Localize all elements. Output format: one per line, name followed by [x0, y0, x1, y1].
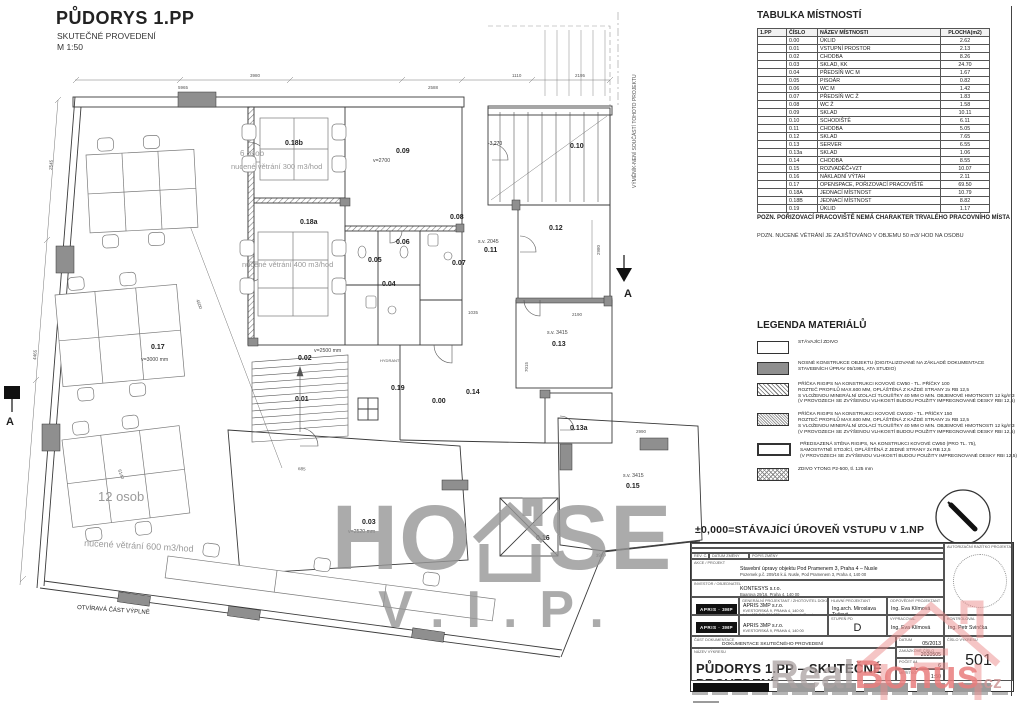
table-cell: [758, 133, 787, 141]
room-label: 0.13: [552, 341, 566, 348]
room-label: 0.08: [450, 214, 464, 221]
project-label: AKCE / PROJEKT: [694, 561, 725, 565]
table-cell: 1.17: [941, 205, 990, 213]
table-cell: 0.04: [787, 69, 818, 77]
table-cell: 1.67: [941, 69, 990, 77]
table-cell: [758, 101, 787, 109]
legend-text: STÁVAJÍCÍ ZDIVO: [798, 340, 838, 346]
table-row: 0.13aSKLAD1.06: [758, 149, 990, 157]
table-cell: CHODBA: [818, 157, 941, 165]
date-cell: DATUM 05/2013: [896, 636, 944, 647]
drawing-title-cell: NÁZEV VÝKRESU PŮDORYS 1.PP – SKUTEČNÉ PR…: [691, 648, 896, 681]
apris-logo: APRIS · 3MP: [696, 604, 737, 615]
legend-item: STÁVAJÍCÍ ZDIVO: [757, 340, 1019, 354]
note-ventilation: POZN. NUCENÉ VĚTRÁNÍ JE ZAJIŠŤOVÁNO V OB…: [757, 233, 1017, 239]
table-cell: VSTUPNÍ PROSTOR: [818, 45, 941, 53]
order-cell: ZAKÁZKOVÉ ČÍSLO 2020505: [896, 647, 944, 658]
table-row: 0.13SERVER6.55: [758, 141, 990, 149]
table-cell: PŘEDSÍŇ WC M: [818, 69, 941, 77]
legend-swatch-cross-icon: [757, 468, 789, 481]
designer-address: KVESTORSKÁ 9, PRAHA 4, 140 00: [743, 629, 827, 633]
legend-text: NOSNÉ KONSTRUKCE OBJEKTU (DIGITALIZOVANÉ…: [798, 361, 984, 373]
floor-plan: 0.17v=3000 mm0.18b0.18a0.09v=27000.100.1…: [0, 0, 750, 703]
table-cell: 0.14: [787, 157, 818, 165]
checked-label: KONTROLOVAL: [947, 617, 975, 621]
drawing-sheet: 0.17v=3000 mm0.18b0.18a0.09v=27000.100.1…: [0, 0, 1024, 703]
table-cell: [758, 45, 787, 53]
room-label: 0.16: [536, 535, 550, 542]
rev-col-label: POPIS ZMĚNY: [752, 554, 778, 558]
dim-label: 2588: [428, 85, 439, 90]
table-cell: SERVER: [818, 141, 941, 149]
table-row: 0.11CHODBA5.05: [758, 125, 990, 133]
legend-title: LEGENDA MATERIÁLŮ: [757, 320, 866, 331]
table-row: 0.08WC Ž1.58: [758, 101, 990, 109]
room-label: 0.01: [295, 396, 309, 403]
table-cell: 0.10: [787, 117, 818, 125]
room-sublabel: v=2700: [373, 158, 390, 164]
table-cell: [758, 85, 787, 93]
room-sublabel: v=2500 mm: [314, 348, 341, 354]
table-cell: 0.09: [787, 109, 818, 117]
scale-cell: MĚŘÍTKO 1:50: [896, 669, 944, 681]
plan-annotation: 6 osob: [240, 149, 265, 158]
dim-label: 1035: [468, 310, 479, 315]
room-label: 0.18a: [300, 219, 318, 226]
title-block: REV. Č. DATUM ZMĚNY POPIS ZMĚNY AUTORIZA…: [690, 542, 1014, 692]
table-cell: PŘEDSÍŇ WC Ž: [818, 93, 941, 101]
legend-item: NOSNÉ KONSTRUKCE OBJEKTU (DIGITALIZOVANÉ…: [757, 361, 1019, 375]
table-row: 0.12SKLAD7.65: [758, 133, 990, 141]
table-row: 0.01VSTUPNÍ PROSTOR2.13: [758, 45, 990, 53]
table-cell: [758, 53, 787, 61]
table-cell: 0.82: [941, 77, 990, 85]
table-cell: PISOÁR: [818, 77, 941, 85]
dim-label: 2190: [572, 312, 583, 317]
table-cell: 10.79: [941, 189, 990, 197]
drafted-name: Ing. Eva Klímová: [891, 625, 943, 631]
table-cell: SKLAD: [818, 109, 941, 117]
table-row: 0.15ROZVADĚČ+VZT10.07: [758, 165, 990, 173]
room-label: 0.03: [362, 519, 376, 526]
col-name: NÁZEV MÍSTNOSTI: [818, 29, 941, 37]
table-row: 0.10SCHODIŠTĚ6.11: [758, 117, 990, 125]
room-sublabel: s.v. 3415: [547, 330, 568, 336]
apris-logo: APRIS · 3MP: [696, 622, 737, 633]
stamp-label: AUTORIZAČNÍ RAZÍTKO PROJEKTANTA: [947, 545, 1013, 549]
plan-annotation: nucené větrání 300 m3/hod: [231, 162, 322, 171]
table-cell: 0.01: [787, 45, 818, 53]
table-row: 0.14CHODBA8.55: [758, 157, 990, 165]
table-row: 0.07PŘEDSÍŇ WC Ž1.83: [758, 93, 990, 101]
responsible-label: ODPOVĚDNÝ PROJEKTANT: [890, 599, 940, 603]
page-title: PŮDORYS 1.PP: [56, 8, 194, 29]
dim-label: 7015: [524, 361, 529, 372]
dim-label: 1110: [512, 73, 522, 78]
table-row: 0.00ÚKLID2.62: [758, 37, 990, 45]
wc-fixtures: [358, 234, 452, 314]
table-cell: 1.42: [941, 85, 990, 93]
legend: STÁVAJÍCÍ ZDIVONOSNÉ KONSTRUKCE OBJEKTU …: [757, 340, 1019, 488]
doc-part-cell: ČÁST DOKUMENTACE DOKUMENTACE SKUTEČNÉHO …: [691, 636, 896, 648]
drawing-title: PŮDORYS 1.PP – SKUTEČNÉ PROVEDENÍ: [696, 661, 895, 681]
drafted-cell: VYPRACOVAL Ing. Eva Klímová: [887, 615, 944, 636]
table-cell: 2.13: [941, 45, 990, 53]
table-cell: 2.62: [941, 37, 990, 45]
drawing-title-label: NÁZEV VÝKRESU: [694, 650, 726, 654]
table-cell: [758, 109, 787, 117]
room-label: 0.11: [484, 247, 497, 254]
plan-annotation: HYDRANT: [380, 358, 400, 363]
designer-cell-2: APRIS 3MP s.r.o. KVESTORSKÁ 9, PRAHA 4, …: [739, 615, 828, 636]
legend-swatch-gray-icon: [757, 362, 789, 375]
table-cell: ÚKLID: [818, 37, 941, 45]
table-cell: 5.05: [941, 125, 990, 133]
dim-label: 5965: [178, 85, 189, 90]
table-cell: 0.13a: [787, 149, 818, 157]
table-cell: 6.11: [941, 117, 990, 125]
plan-annotation: A: [624, 288, 632, 300]
table-cell: SKLAD: [818, 149, 941, 157]
chief-label: HLAVNÍ PROJEKTANT: [831, 599, 870, 603]
dim-label: 3960: [596, 552, 607, 558]
table-row: 0.09SKLAD10.11: [758, 109, 990, 117]
room-label: 0.02: [298, 355, 312, 362]
table-cell: [758, 181, 787, 189]
table-cell: NÁKLADNÍ VÝTAH: [818, 173, 941, 181]
legend-swatch-thick-icon: [757, 443, 791, 456]
room-sublabel: v=3000 mm: [141, 357, 168, 363]
table-row: 0.18BJEDNACÍ MÍSTNOST8.82: [758, 197, 990, 205]
table-cell: [758, 165, 787, 173]
table-cell: ROZVADĚČ+VZT: [818, 165, 941, 173]
stage-cell: STUPEŇ PD D: [828, 615, 887, 636]
room-table-header: 1.PP ČÍSLO NÁZEV MÍSTNOSTI PLOCHA(m2): [758, 29, 990, 37]
stamp-cell: AUTORIZAČNÍ RAZÍTKO PROJEKTANTA: [944, 543, 1013, 615]
legend-item: ZDIVO YTONG P2-500, tl. 125 mm: [757, 467, 1019, 481]
room-label: 0.18b: [285, 140, 303, 147]
table-row: 0.03SKLAD, KK24.70: [758, 61, 990, 69]
table-cell: 0.02: [787, 53, 818, 61]
datum-note: ±0,000=STÁVAJÍCÍ ÚROVEŇ VSTUPU V 1.NP: [695, 524, 924, 536]
date-label: DATUM: [899, 638, 912, 642]
chief-name: Ing.arch. Miroslava Tyčová: [832, 606, 886, 615]
table-cell: 0.06: [787, 85, 818, 93]
room-label: 0.00: [432, 398, 446, 405]
table-cell: [758, 37, 787, 45]
designer-logo-cell: APRIS · 3MP: [691, 597, 739, 615]
rev-col-label: DATUM ZMĚNY: [712, 554, 740, 558]
legend-swatch-white-icon: [757, 341, 789, 354]
designer-logo-cell-2: APRIS · 3MP: [691, 615, 739, 636]
legend-swatch-hatch-icon: [757, 383, 789, 396]
table-cell: [758, 61, 787, 69]
room-label: 0.07: [452, 260, 466, 267]
table-cell: CHODBA: [818, 53, 941, 61]
room-label: 0.15: [626, 483, 640, 490]
table-cell: 0.15: [787, 165, 818, 173]
legend-text: PŘÍČKA RIGIPS NA KONSTRUKCI KOVOVÉ CW100…: [798, 412, 1015, 435]
legend-item: PŘÍČKA RIGIPS NA KONSTRUKCI KOVOVÉ CW50 …: [757, 382, 1019, 405]
project-cell: AKCE / PROJEKT Stavební úpravy objektu P…: [691, 559, 944, 580]
format-cell: POČET A4 6: [896, 658, 944, 669]
project-line2: Pozemek p.č. 209/16 k.ú. Nusle, Pod Pram…: [740, 572, 943, 577]
investor-label: INVESTOR / OBJEDNATEL: [694, 582, 741, 586]
table-cell: [758, 141, 787, 149]
room-label: 0.13a: [570, 425, 588, 432]
dim-label: 2195: [575, 73, 586, 78]
table-cell: [758, 149, 787, 157]
drawing-number-label: ČÍSLO VÝKRESU: [947, 638, 978, 642]
table-cell: 69.50: [941, 181, 990, 189]
table-cell: [758, 69, 787, 77]
stamp-circle: [953, 554, 1007, 608]
table-cell: 1.58: [941, 101, 990, 109]
room-label: 0.05: [368, 257, 382, 264]
table-cell: JEDNACÍ MÍSTNOST: [818, 189, 941, 197]
redacted-strip: [693, 683, 1011, 692]
format-label: POČET A4: [899, 660, 918, 664]
plan-annotation: 12 osob: [98, 489, 144, 504]
drawing-number: 501: [945, 652, 1012, 670]
table-row: 0.16NÁKLADNÍ VÝTAH2.11: [758, 173, 990, 181]
table-cell: WC M: [818, 85, 941, 93]
room-label: 0.06: [396, 239, 410, 246]
col-number: ČÍSLO: [787, 29, 818, 37]
table-cell: OPENSPACE, POŘIZOVACÍ PRACOVIŠTĚ: [818, 181, 941, 189]
table-cell: 7.65: [941, 133, 990, 141]
room-sublabel: s.v. 2045: [478, 239, 499, 245]
table-cell: 8.82: [941, 197, 990, 205]
table-cell: [758, 173, 787, 181]
table-cell: CHODBA: [818, 125, 941, 133]
dim-label: 2980: [596, 244, 601, 255]
page-scale: M 1:50: [57, 42, 83, 52]
table-cell: [758, 205, 787, 213]
room-label: 0.17: [151, 344, 165, 351]
plan-annotation: A: [6, 416, 14, 428]
doc-part-value: DOKUMENTACE SKUTEČNÉHO PROVEDENÍ: [722, 642, 895, 647]
room-label: 0.12: [549, 225, 563, 232]
table-cell: 24.70: [941, 61, 990, 69]
table-cell: [758, 93, 787, 101]
stair-top: [491, 112, 607, 202]
table-cell: 1.06: [941, 149, 990, 157]
legend-text: PŘEDSAZENÁ STĚNA RIGIPS, NA KONSTRUKCI K…: [800, 442, 1017, 459]
table-cell: 0.00: [787, 37, 818, 45]
room-label: 0.19: [391, 385, 405, 392]
table-cell: 0.16: [787, 173, 818, 181]
table-cell: 0.18A: [787, 189, 818, 197]
dim-label: 3980: [250, 73, 261, 78]
table-row: 0.06WC M1.42: [758, 85, 990, 93]
rev-col-label: REV. Č.: [694, 554, 707, 558]
responsible-name: Ing. Eva Klímová: [891, 606, 943, 612]
table-cell: 0.08: [787, 101, 818, 109]
legend-item: PŘÍČKA RIGIPS NA KONSTRUKCI KOVOVÉ CW100…: [757, 412, 1019, 435]
table-cell: JEDNACÍ MÍSTNOST: [818, 197, 941, 205]
room-sublabel: s.v. 3415: [623, 473, 644, 479]
table-cell: 0.19: [787, 205, 818, 213]
exterior-dashed-lines: [488, 12, 618, 106]
table-cell: [758, 189, 787, 197]
table-cell: [758, 197, 787, 205]
plan-annotation: -3,270: [488, 141, 502, 147]
dim-label: 4465: [32, 349, 38, 360]
north-arrow-icon: [932, 486, 994, 548]
table-cell: 8.26: [941, 53, 990, 61]
col-area: PLOCHA(m2): [941, 29, 990, 37]
legend-text: ZDIVO YTONG P2-500, tl. 125 mm: [798, 467, 873, 473]
checked-name: Ing. Petr Svinčka: [948, 625, 1012, 631]
responsible-cell: ODPOVĚDNÝ PROJEKTANT Ing. Eva Klímová: [887, 597, 944, 615]
table-cell: SKLAD: [818, 133, 941, 141]
disclaimer-line: [692, 692, 1010, 695]
table-cell: [758, 125, 787, 133]
table-cell: 10.11: [941, 109, 990, 117]
dim-label: 4500: [195, 299, 203, 311]
table-cell: 0.03: [787, 61, 818, 69]
stage-label: STUPEŇ PD: [831, 617, 853, 621]
table-cell: [758, 77, 787, 85]
table-cell: 2.11: [941, 173, 990, 181]
table-cell: 8.55: [941, 157, 990, 165]
table-cell: 6.55: [941, 141, 990, 149]
table-cell: WC Ž: [818, 101, 941, 109]
plan-annotation: nucené větrání 400 m3/hod: [242, 260, 333, 269]
col-floor: 1.PP: [758, 29, 787, 37]
table-cell: SCHODIŠTĚ: [818, 117, 941, 125]
table-cell: [758, 157, 787, 165]
table-row: 0.02CHODBA8.26: [758, 53, 990, 61]
designer-label: GENERÁLNÍ PROJEKTANT / ZHOTOVITEL DOKUME…: [742, 599, 828, 603]
table-cell: 0.07: [787, 93, 818, 101]
table-cell: 0.13: [787, 141, 818, 149]
designer-cell: GENERÁLNÍ PROJEKTANT / ZHOTOVITEL DOKUME…: [739, 597, 828, 615]
note-workplace: POZN. POŘIZOVACÍ PRACOVIŠTĚ NEMÁ CHARAKT…: [757, 215, 1017, 221]
checked-cell: KONTROLOVAL Ing. Petr Svinčka: [944, 615, 1013, 636]
order-label: ZAKÁZKOVÉ ČÍSLO: [899, 649, 934, 653]
drawing-number-cell: ČÍSLO VÝKRESU 501: [944, 636, 1013, 681]
legend-swatch-dense-icon: [757, 413, 789, 426]
table-row: 0.18AJEDNACÍ MÍSTNOST10.79: [758, 189, 990, 197]
legend-item: PŘEDSAZENÁ STĚNA RIGIPS, NA KONSTRUKCI K…: [757, 442, 1019, 459]
table-cell: ÚKLID: [818, 205, 941, 213]
sheet-border: [1011, 6, 1012, 696]
room-label: 0.14: [466, 389, 480, 396]
table-cell: 0.12: [787, 133, 818, 141]
room-label: 0.04: [382, 281, 396, 288]
table-cell: 0.17: [787, 181, 818, 189]
room-label: 0.09: [396, 148, 410, 155]
dim-label: 2990: [636, 429, 647, 434]
dim-label: 2545: [48, 159, 54, 170]
table-row: 0.17OPENSPACE, POŘIZOVACÍ PRACOVIŠTĚ69.5…: [758, 181, 990, 189]
room-sublabel: v=2520 mm: [348, 529, 375, 535]
room-table-title: TABULKA MÍSTNOSTÍ: [757, 10, 861, 21]
investor-cell: INVESTOR / OBJEDNATEL KONTESYS s.r.o. Ba…: [691, 580, 944, 597]
plan-annotation: VÝMĚNÍK-NENÍ SOUČÁSTÍ TOHOTO PROJEKTU: [630, 74, 638, 188]
table-cell: 1.83: [941, 93, 990, 101]
drafted-label: VYPRACOVAL: [890, 617, 915, 621]
chief-cell: HLAVNÍ PROJEKTANT Ing.arch. Miroslava Ty…: [828, 597, 887, 615]
legend-text: PŘÍČKA RIGIPS NA KONSTRUKCI KOVOVÉ CW50 …: [798, 382, 1015, 405]
table-cell: [758, 117, 787, 125]
table-cell: 0.11: [787, 125, 818, 133]
table-row: 0.19ÚKLID1.17: [758, 205, 990, 213]
table-row: 0.04PŘEDSÍŇ WC M1.67: [758, 69, 990, 77]
table-cell: 0.18B: [787, 197, 818, 205]
room-table: 1.PP ČÍSLO NÁZEV MÍSTNOSTI PLOCHA(m2) 0.…: [757, 28, 990, 213]
table-cell: SKLAD, KK: [818, 61, 941, 69]
scale-label: MĚŘÍTKO: [899, 671, 916, 675]
room-label: 0.10: [570, 143, 584, 150]
page-subtitle: SKUTEČNÉ PROVEDENÍ: [57, 31, 156, 41]
dim-label: 685: [298, 466, 306, 472]
doc-part-label: ČÁST DOKUMENTACE: [694, 638, 734, 642]
table-cell: 0.05: [787, 77, 818, 85]
plan-annotation: nucené větrání 600 m3/hod: [84, 538, 194, 554]
table-row: 0.05PISOÁR0.82: [758, 77, 990, 85]
table-cell: 10.07: [941, 165, 990, 173]
stage-value: D: [829, 622, 886, 634]
